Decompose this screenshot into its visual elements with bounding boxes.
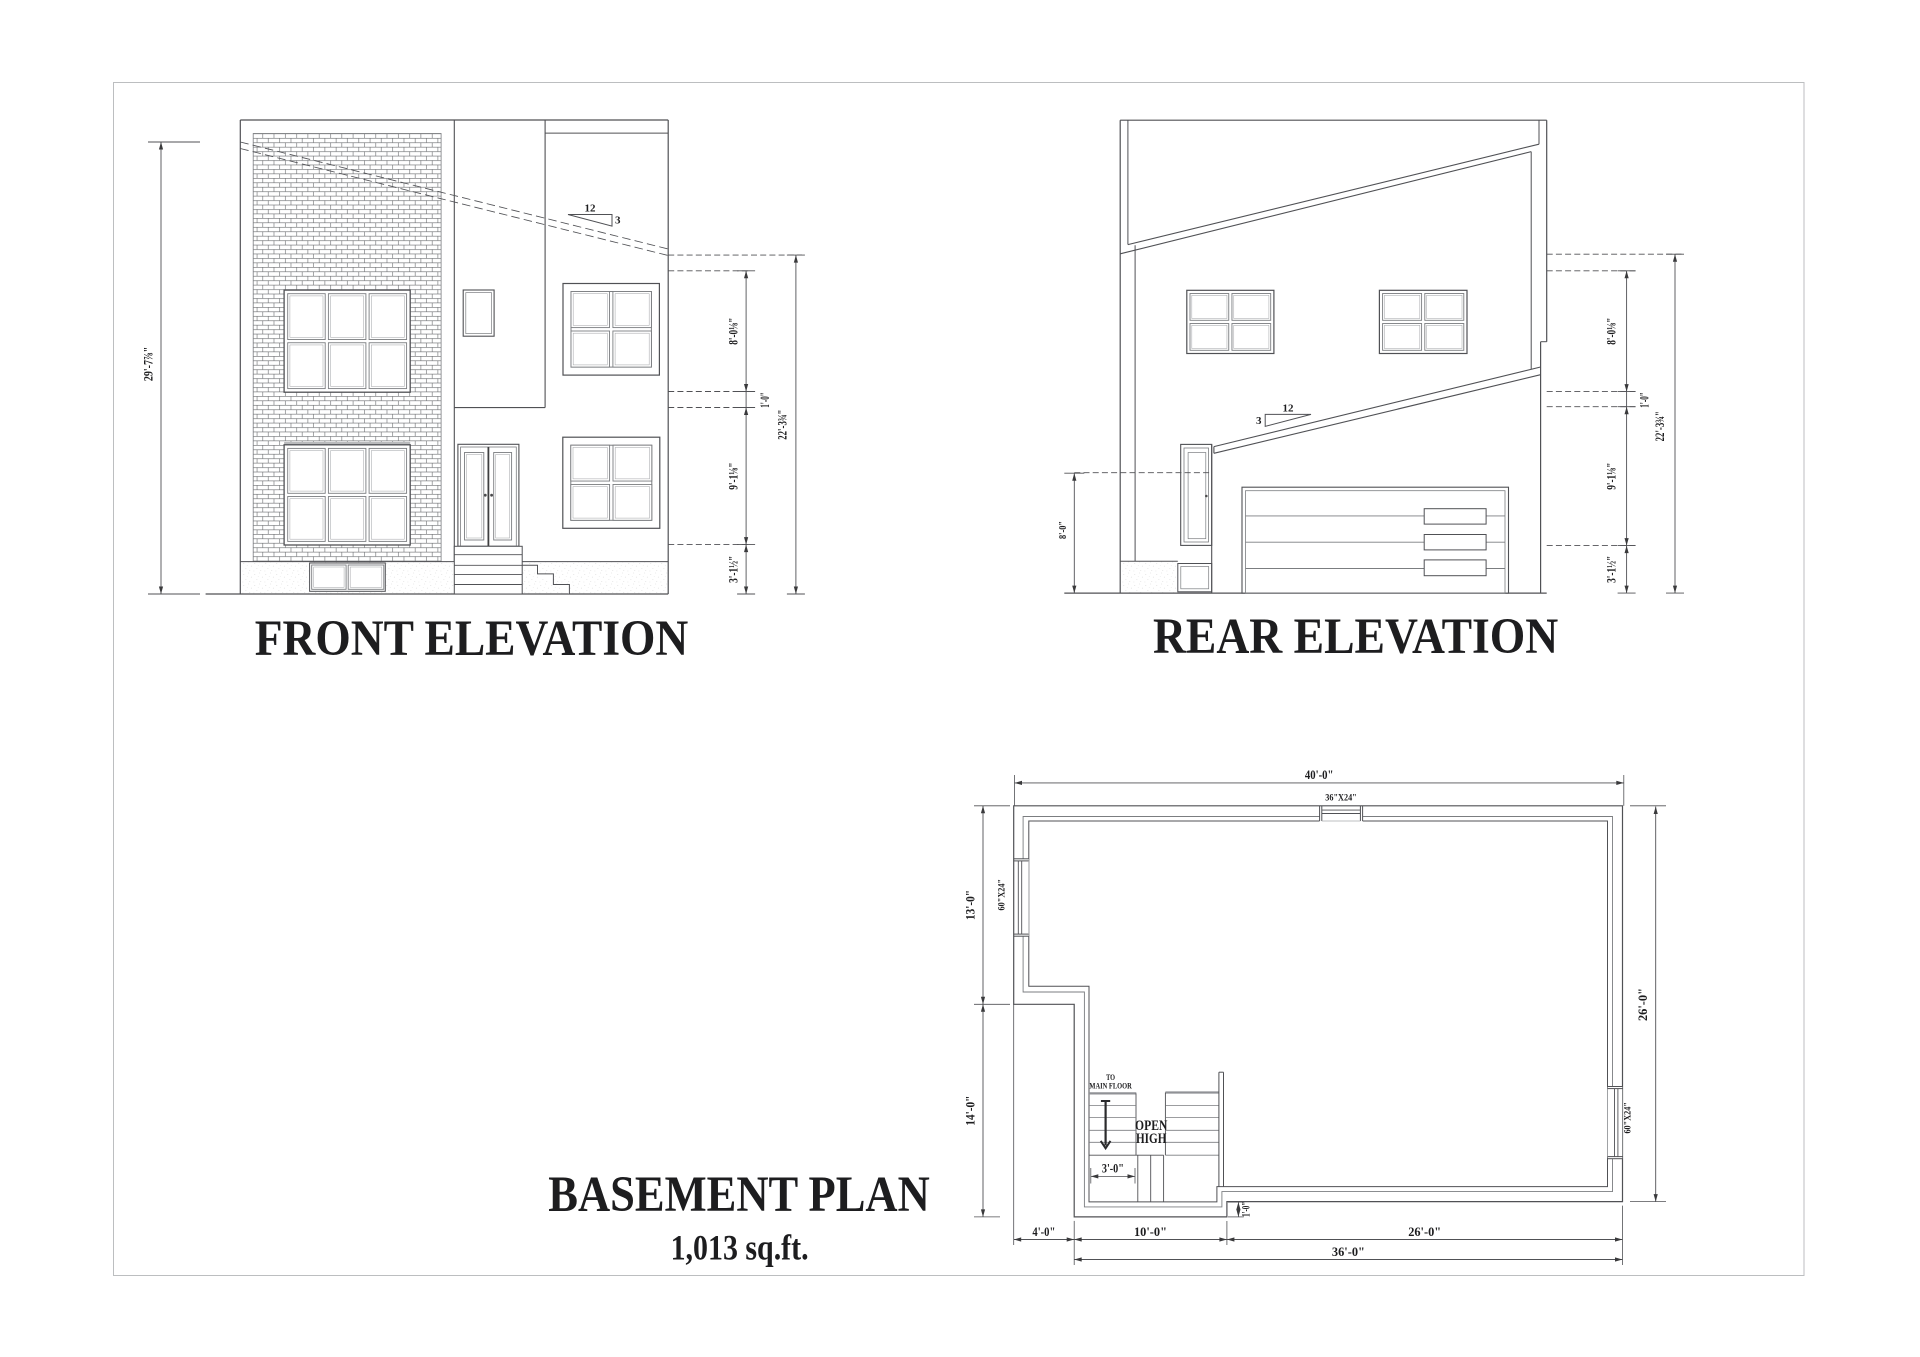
svg-text:3'-1½": 3'-1½" <box>726 556 741 583</box>
svg-text:4'-0": 4'-0" <box>1032 1224 1055 1239</box>
svg-text:3'-0": 3'-0" <box>1102 1162 1124 1176</box>
svg-text:12: 12 <box>1283 402 1295 414</box>
svg-text:36'-0": 36'-0" <box>1332 1244 1365 1259</box>
svg-text:60"X24": 60"X24" <box>998 879 1008 911</box>
svg-text:MAIN FLOOR: MAIN FLOOR <box>1089 1081 1132 1091</box>
svg-text:8'-0": 8'-0" <box>1057 521 1069 539</box>
svg-text:36"X24": 36"X24" <box>1325 794 1357 804</box>
svg-text:BASEMENT PLAN: BASEMENT PLAN <box>548 1166 930 1222</box>
svg-text:1'-0": 1'-0" <box>1239 1202 1253 1217</box>
svg-text:1'-0": 1'-0" <box>757 392 772 407</box>
svg-text:HIGH: HIGH <box>1136 1131 1167 1147</box>
svg-text:3'-1½": 3'-1½" <box>1604 556 1619 583</box>
svg-text:9'-1⅛": 9'-1⅛" <box>726 463 741 490</box>
svg-text:12: 12 <box>585 203 597 215</box>
svg-text:26'-0": 26'-0" <box>1635 988 1650 1021</box>
svg-text:29'-7⅞": 29'-7⅞" <box>141 347 156 381</box>
svg-text:10'-0": 10'-0" <box>1134 1224 1167 1239</box>
svg-text:REAR ELEVATION: REAR ELEVATION <box>1153 608 1558 664</box>
svg-text:13'-0": 13'-0" <box>963 890 978 920</box>
svg-text:1,013 sq.ft.: 1,013 sq.ft. <box>671 1228 809 1268</box>
svg-text:14'-0": 14'-0" <box>963 1096 978 1126</box>
svg-text:40'-0": 40'-0" <box>1305 767 1334 782</box>
svg-text:3: 3 <box>1256 415 1262 427</box>
svg-text:60"X24": 60"X24" <box>1624 1102 1634 1134</box>
svg-text:22'-3¾": 22'-3¾" <box>775 410 790 440</box>
svg-text:1'-0": 1'-0" <box>1637 392 1652 407</box>
svg-text:22'-3¾": 22'-3¾" <box>1652 411 1667 441</box>
svg-text:FRONT ELEVATION: FRONT ELEVATION <box>255 610 689 666</box>
svg-text:3: 3 <box>615 215 621 227</box>
svg-text:9'-1⅛": 9'-1⅛" <box>1604 463 1619 490</box>
svg-text:8'-0⅛": 8'-0⅛" <box>1604 318 1619 345</box>
svg-text:8'-0⅛": 8'-0⅛" <box>726 318 741 345</box>
svg-text:26'-0": 26'-0" <box>1408 1224 1441 1239</box>
